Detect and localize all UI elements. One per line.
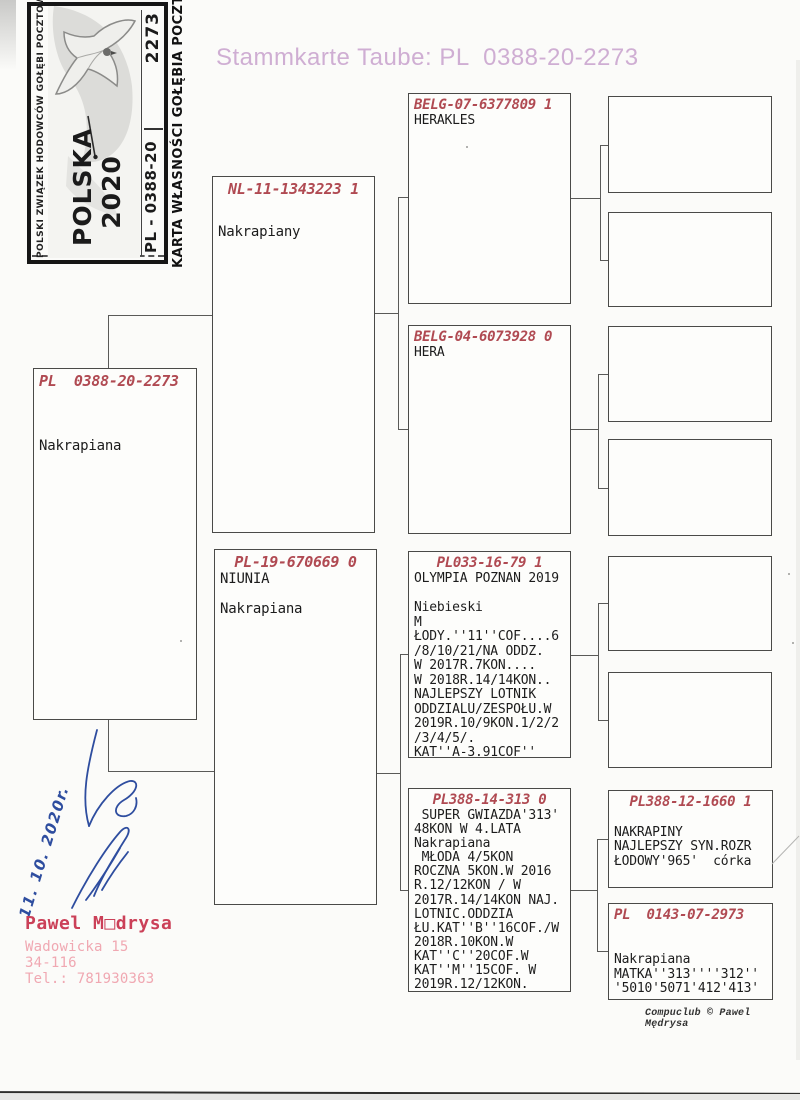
pedigree-connector-line (400, 890, 408, 891)
page-title: Stammkarte Taube: PL 0388-20-2273 (216, 44, 639, 72)
pedigree-connector-line (597, 839, 598, 951)
pedigree-connector-line (597, 951, 608, 952)
signature-scribble (58, 726, 153, 921)
pedigree-connector-line (571, 655, 598, 656)
pigeon-notes: NAKRAPINY NAJLEPSZY SYN.ROZR ŁODOWY'965'… (609, 810, 772, 869)
pigeon-notes: HERA (409, 345, 570, 361)
pedigree-connector-line (571, 890, 597, 891)
stamp-ring-number: 2273 (143, 12, 165, 122)
pigeon-notes: NIUNIA Nakrapiana (215, 571, 376, 617)
pedigree-box-empty (608, 96, 772, 193)
pedigree-connector-line (108, 315, 212, 316)
ring-number: PL 0388-20-2273 (34, 369, 196, 390)
ring-number: PL388-12-1660 1 (609, 791, 772, 810)
pedigree-card-scan: { "header": { "title": "Stammkarte Taube… (0, 0, 800, 1100)
scan-edge-bottom (0, 1094, 800, 1100)
pedigree-box-empty (608, 212, 772, 307)
ring-number: PL033-16-79 1 (409, 552, 570, 571)
pedigree-box-empty (608, 326, 772, 422)
owner-phone: Tel.: 781930363 (25, 971, 154, 987)
pedigree-connector-line (600, 260, 608, 261)
scan-speck (788, 573, 790, 575)
pedigree-connector-line (598, 374, 608, 375)
pedigree-connector-line (400, 654, 401, 890)
pedigree-box-great-grandmother-maternal: PL 0143-07-2973 Nakrapiana MATKA''313'''… (608, 903, 773, 1000)
scan-speck (180, 640, 182, 642)
stamp-ring-separator (144, 128, 163, 130)
owner-postal-code: 34-116 (25, 955, 77, 971)
pedigree-connector-line (598, 374, 599, 488)
pedigree-connector-line (600, 145, 608, 146)
owner-street: Wadowicka 15 (25, 939, 129, 955)
pigeon-notes: Nakrapiana (34, 438, 196, 454)
pedigree-connector-line (108, 315, 109, 368)
pigeon-notes: Nakrapiana MATKA''313''''312'' '5010'507… (609, 923, 772, 997)
stamp-card-type-text: KARTA WŁASNOŚCI GOŁĘBIA POCZTOWEGO (171, 0, 197, 268)
pedigree-connector-line (377, 773, 400, 774)
pedigree-box-grandmother-paternal: BELG-04-6073928 0 HERA (408, 325, 571, 534)
pedigree-connector-line (398, 429, 408, 430)
scan-edge-top-left (0, 0, 16, 70)
ring-number: PL388-14-313 0 (409, 789, 570, 808)
pigeon-notes: Nakrapiany (213, 224, 374, 240)
pedigree-connector-line (598, 720, 608, 721)
stamp-country-year: POLSKA 2020 (68, 138, 120, 246)
stamp-ring-series: PL - 0388-20 (142, 138, 164, 256)
pedigree-box-grandfather-paternal: BELG-07-6377809 1 HERAKLES (408, 93, 571, 304)
pigeon-notes: SUPER GWIAZDA'313' 48KON W 4.LATA Nakrap… (409, 808, 570, 992)
pedigree-connector-line (400, 654, 408, 655)
software-credit: Compuclub © Pawel Mędrysa (645, 1008, 800, 1030)
scan-speck (792, 642, 794, 644)
scan-edge-right (796, 60, 800, 1060)
pedigree-connector-line (598, 488, 608, 489)
ring-number: BELG-04-6073928 0 (409, 326, 570, 345)
pedigree-box-father: NL-11-1343223 1 Nakrapiany (212, 176, 375, 533)
pedigree-box-subject: PL 0388-20-2273 Nakrapiana (33, 368, 197, 720)
ring-number: NL-11-1343223 1 (213, 177, 374, 198)
pedigree-box-grandmother-maternal: PL388-14-313 0 SUPER GWIAZDA'313' 48KON … (408, 788, 571, 992)
pigeon-notes: OLYMPIA POZNAN 2019 Niebieski M ŁODY.''1… (409, 571, 570, 761)
pedigree-connector-line (375, 313, 398, 314)
pedigree-box-empty (608, 556, 772, 651)
pedigree-box-grandfather-maternal: PL033-16-79 1 OLYMPIA POZNAN 2019 Niebie… (408, 551, 571, 758)
owner-name: Pawel M□drysa (25, 913, 172, 934)
ring-number: PL-19-670669 0 (215, 550, 376, 571)
pedigree-box-empty (608, 439, 772, 536)
ring-number: BELG-07-6377809 1 (409, 94, 570, 113)
pedigree-connector-line (398, 197, 408, 198)
pedigree-connector-line (598, 603, 599, 720)
pedigree-connector-line (598, 603, 608, 604)
pedigree-connector-line (597, 839, 608, 840)
pedigree-connector-line (571, 198, 600, 199)
pedigree-connector-line (571, 429, 598, 430)
scan-speck (466, 146, 468, 148)
scan-crease (770, 834, 800, 866)
pedigree-connector-line (398, 197, 399, 429)
ring-number: PL 0143-07-2973 (609, 904, 772, 923)
pedigree-connector-line (600, 145, 601, 260)
pedigree-box-mother: PL-19-670669 0 NIUNIA Nakrapiana (214, 549, 377, 905)
pedigree-box-empty (608, 672, 772, 768)
pigeon-notes: HERAKLES (409, 113, 570, 129)
pedigree-box-great-grandfather-maternal: PL388-12-1660 1 NAKRAPINY NAJLEPSZY SYN.… (608, 790, 773, 888)
